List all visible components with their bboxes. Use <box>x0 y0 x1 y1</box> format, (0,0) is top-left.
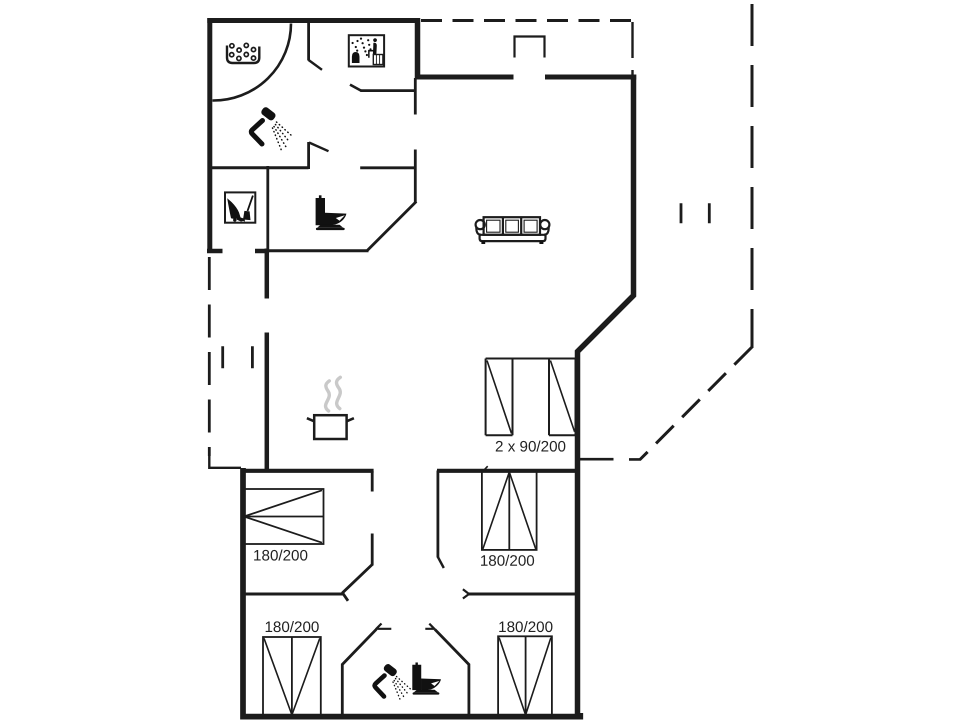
svg-text:180/200: 180/200 <box>498 619 553 636</box>
svg-text:180/200: 180/200 <box>253 547 308 564</box>
svg-text:180/200: 180/200 <box>480 553 535 570</box>
svg-text:2 x 90/200: 2 x 90/200 <box>495 438 566 455</box>
svg-text:180/200: 180/200 <box>264 619 319 636</box>
